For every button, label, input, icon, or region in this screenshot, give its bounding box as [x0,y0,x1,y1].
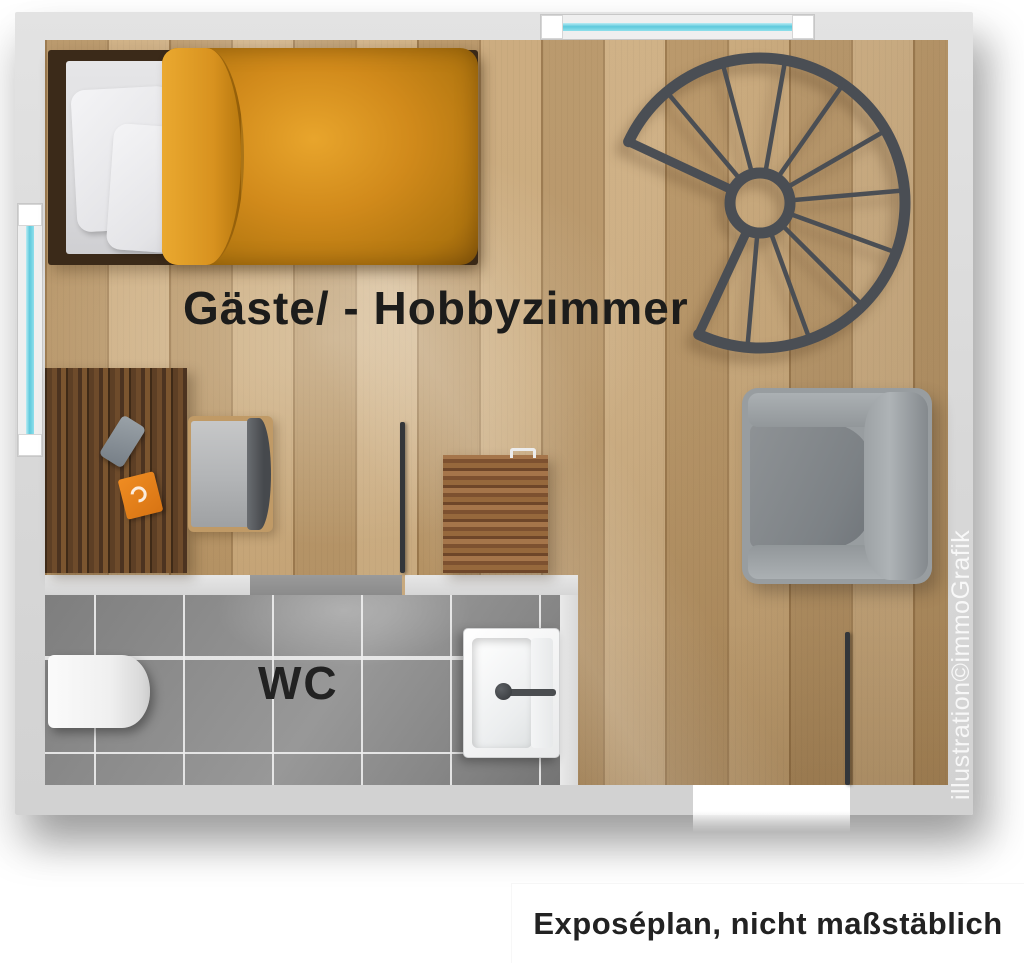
faucet-head [495,683,512,700]
wc-label: WC [258,656,339,710]
watermark: illustration©immoGrafik [948,470,974,800]
chair-backrest [247,418,271,530]
window-glass [26,224,34,436]
cabinet [443,455,548,573]
room-label: Gäste/ - Hobbyzimmer [183,281,689,335]
floor-plan-canvas: Gäste/ - Hobbyzimmer WC illustration©imm… [0,0,1024,963]
armchair-backrest [864,392,928,580]
entry-door-leaf [845,632,850,785]
phone [99,414,147,468]
wc-door-leaf [400,422,405,573]
window-top [540,14,815,40]
armchair [742,388,932,584]
armchair-seat [750,424,872,548]
caption-text: Exposéplan, nicht maßstäblich [533,906,1002,942]
sink [463,628,560,758]
wc-door-threshold [250,575,402,595]
chair-seat [191,421,250,527]
window-frame-cap [541,15,563,39]
toilet [48,655,150,728]
entry-door-opening [693,785,850,832]
desk [45,368,187,573]
duvet-fold [162,48,244,265]
wc-right-wall [560,595,578,785]
wall-between-rooms-right [405,575,578,595]
duvet [162,48,478,265]
tablet-logo [127,483,150,506]
wall-between-rooms-left [45,575,250,595]
tablet [118,471,164,520]
window-frame-cap [18,434,42,456]
desk-chair [188,416,273,532]
window-glass [561,23,794,31]
window-frame-cap [18,204,42,226]
window-frame-cap [792,15,814,39]
caption-box: Exposéplan, nicht maßstäblich [512,884,1024,963]
window-left [17,203,43,457]
bed [48,50,478,265]
cabinet-handle [510,448,536,458]
